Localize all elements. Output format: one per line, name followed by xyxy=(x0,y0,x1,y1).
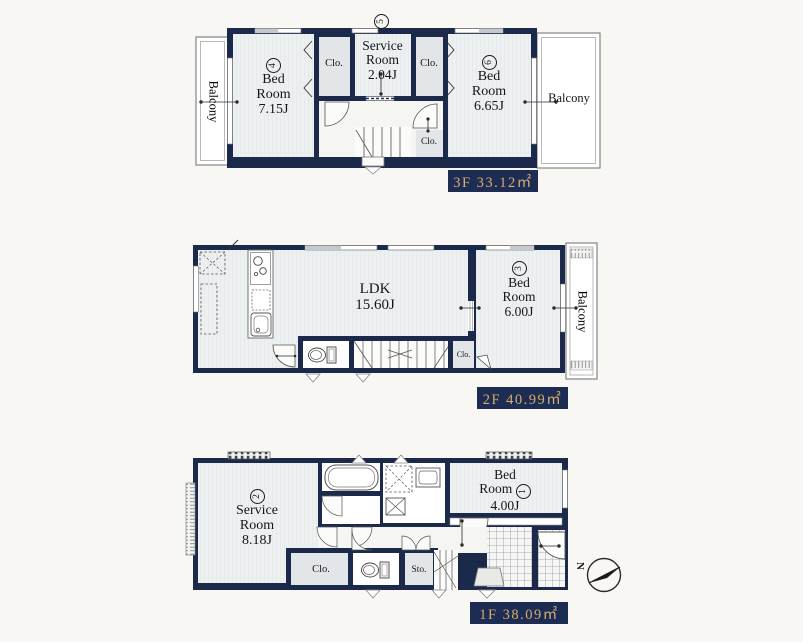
closet-label: Clo. xyxy=(414,137,444,147)
compass-icon xyxy=(588,559,621,592)
balcony-label-2f: Balcony xyxy=(566,243,597,379)
room-label-bedroom1: Bed Room 1 4.00J xyxy=(455,468,555,514)
closet-label: Clo. xyxy=(291,564,351,575)
balcony-left-label: Balcony xyxy=(196,37,229,165)
floorplan-drawing xyxy=(0,0,803,642)
bathtub-icon xyxy=(325,465,378,490)
closet-label: Clo. xyxy=(450,351,477,360)
toilet-1f-icon xyxy=(348,548,404,590)
washbasin-icon xyxy=(416,468,440,487)
floor-area-badge-3f: 3F 33.12㎡ xyxy=(448,170,538,192)
room-label-service-3f: Service Room 2.04J xyxy=(352,39,413,82)
room-number-5: 5 xyxy=(372,10,390,29)
room-label-service-1f: 2 Service Room 8.18J xyxy=(198,488,316,549)
balcony-right-label: Balcony xyxy=(538,92,600,105)
room-label-bedroom6: 6 Bed Room 6.65J xyxy=(446,54,532,115)
toilet-2f-icon xyxy=(298,336,354,373)
room-label-ldk: LDK 15.60J xyxy=(330,281,420,313)
closet-label: Clo. xyxy=(414,58,444,69)
stairs-1f-icon xyxy=(434,550,458,590)
closet-label: Clo. xyxy=(318,58,350,69)
entrance-step xyxy=(474,568,504,586)
floorplan-page: 5 Balcony 4 Bed Room 7.15J Clo. Service … xyxy=(0,0,803,642)
room-label-bedroom4: 4 Bed Room 7.15J xyxy=(233,57,314,118)
room-label-bedroom3: 3 Bed Room 6.00J xyxy=(477,259,561,319)
storage-label: Sto. xyxy=(402,565,436,575)
stairs-2f-icon xyxy=(354,336,452,368)
floor-area-badge-2f: 2F 40.99㎡ xyxy=(477,387,568,409)
north-label: N xyxy=(574,562,586,570)
washing-machine-icon xyxy=(386,498,405,515)
floor-area-badge-1f: 1F 38.09㎡ xyxy=(470,602,568,624)
